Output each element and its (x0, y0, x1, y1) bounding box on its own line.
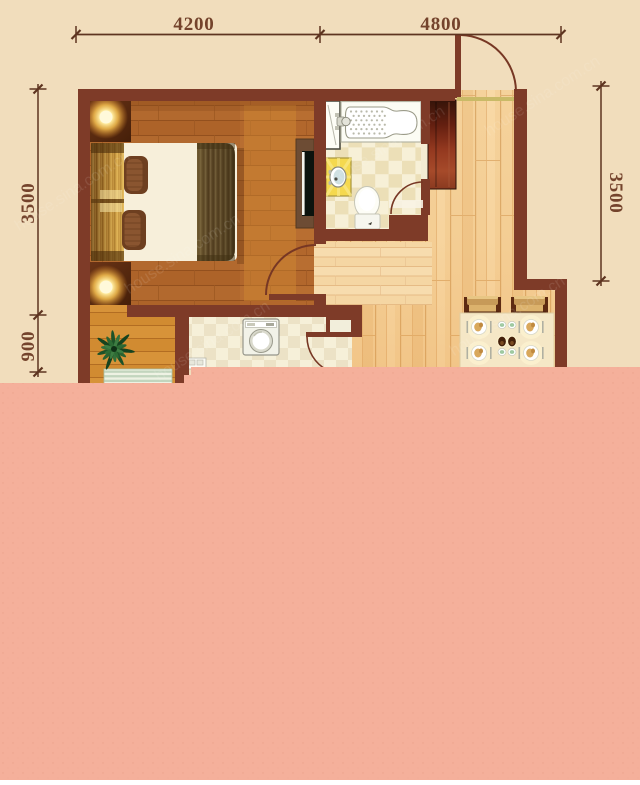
svg-text:4200: 4200 (173, 14, 214, 35)
svg-text:4800: 4800 (420, 14, 461, 35)
svg-text:900: 900 (18, 331, 39, 362)
svg-text:3500: 3500 (605, 172, 626, 213)
